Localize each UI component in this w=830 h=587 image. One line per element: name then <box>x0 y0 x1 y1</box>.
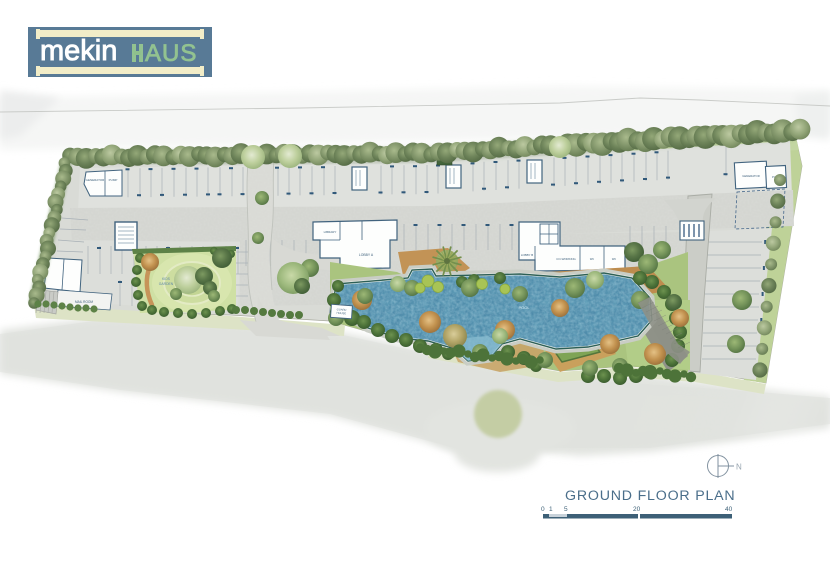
svg-text:5: 5 <box>564 506 568 513</box>
svg-text:GROUND FLOOR PLAN: GROUND FLOOR PLAN <box>565 488 735 504</box>
svg-text:1: 1 <box>549 506 553 513</box>
svg-text:GARDEN: GARDEN <box>159 282 174 286</box>
svg-text:KIDS: KIDS <box>162 277 171 281</box>
svg-text:LIBRARY: LIBRARY <box>324 230 337 234</box>
svg-text:LOBBY B: LOBBY B <box>521 253 533 257</box>
svg-text:0: 0 <box>541 506 545 513</box>
svg-text:40: 40 <box>725 506 733 513</box>
svg-text:LOBBY A: LOBBY A <box>359 253 374 257</box>
svg-text:WC: WC <box>590 257 594 261</box>
svg-text:MAIL ROOM: MAIL ROOM <box>75 300 93 304</box>
svg-text:20: 20 <box>633 506 641 513</box>
svg-text:WC: WC <box>612 257 616 261</box>
svg-text:GENERATOR: GENERATOR <box>86 178 106 182</box>
svg-text:GENERATOR: GENERATOR <box>742 174 759 178</box>
svg-text:PUMP: PUMP <box>109 178 118 182</box>
svg-text:HOUSE: HOUSE <box>336 311 346 316</box>
svg-text:POOL: POOL <box>518 305 530 310</box>
svg-text:CO-WORKING: CO-WORKING <box>556 257 576 261</box>
svg-text:N: N <box>736 463 742 472</box>
